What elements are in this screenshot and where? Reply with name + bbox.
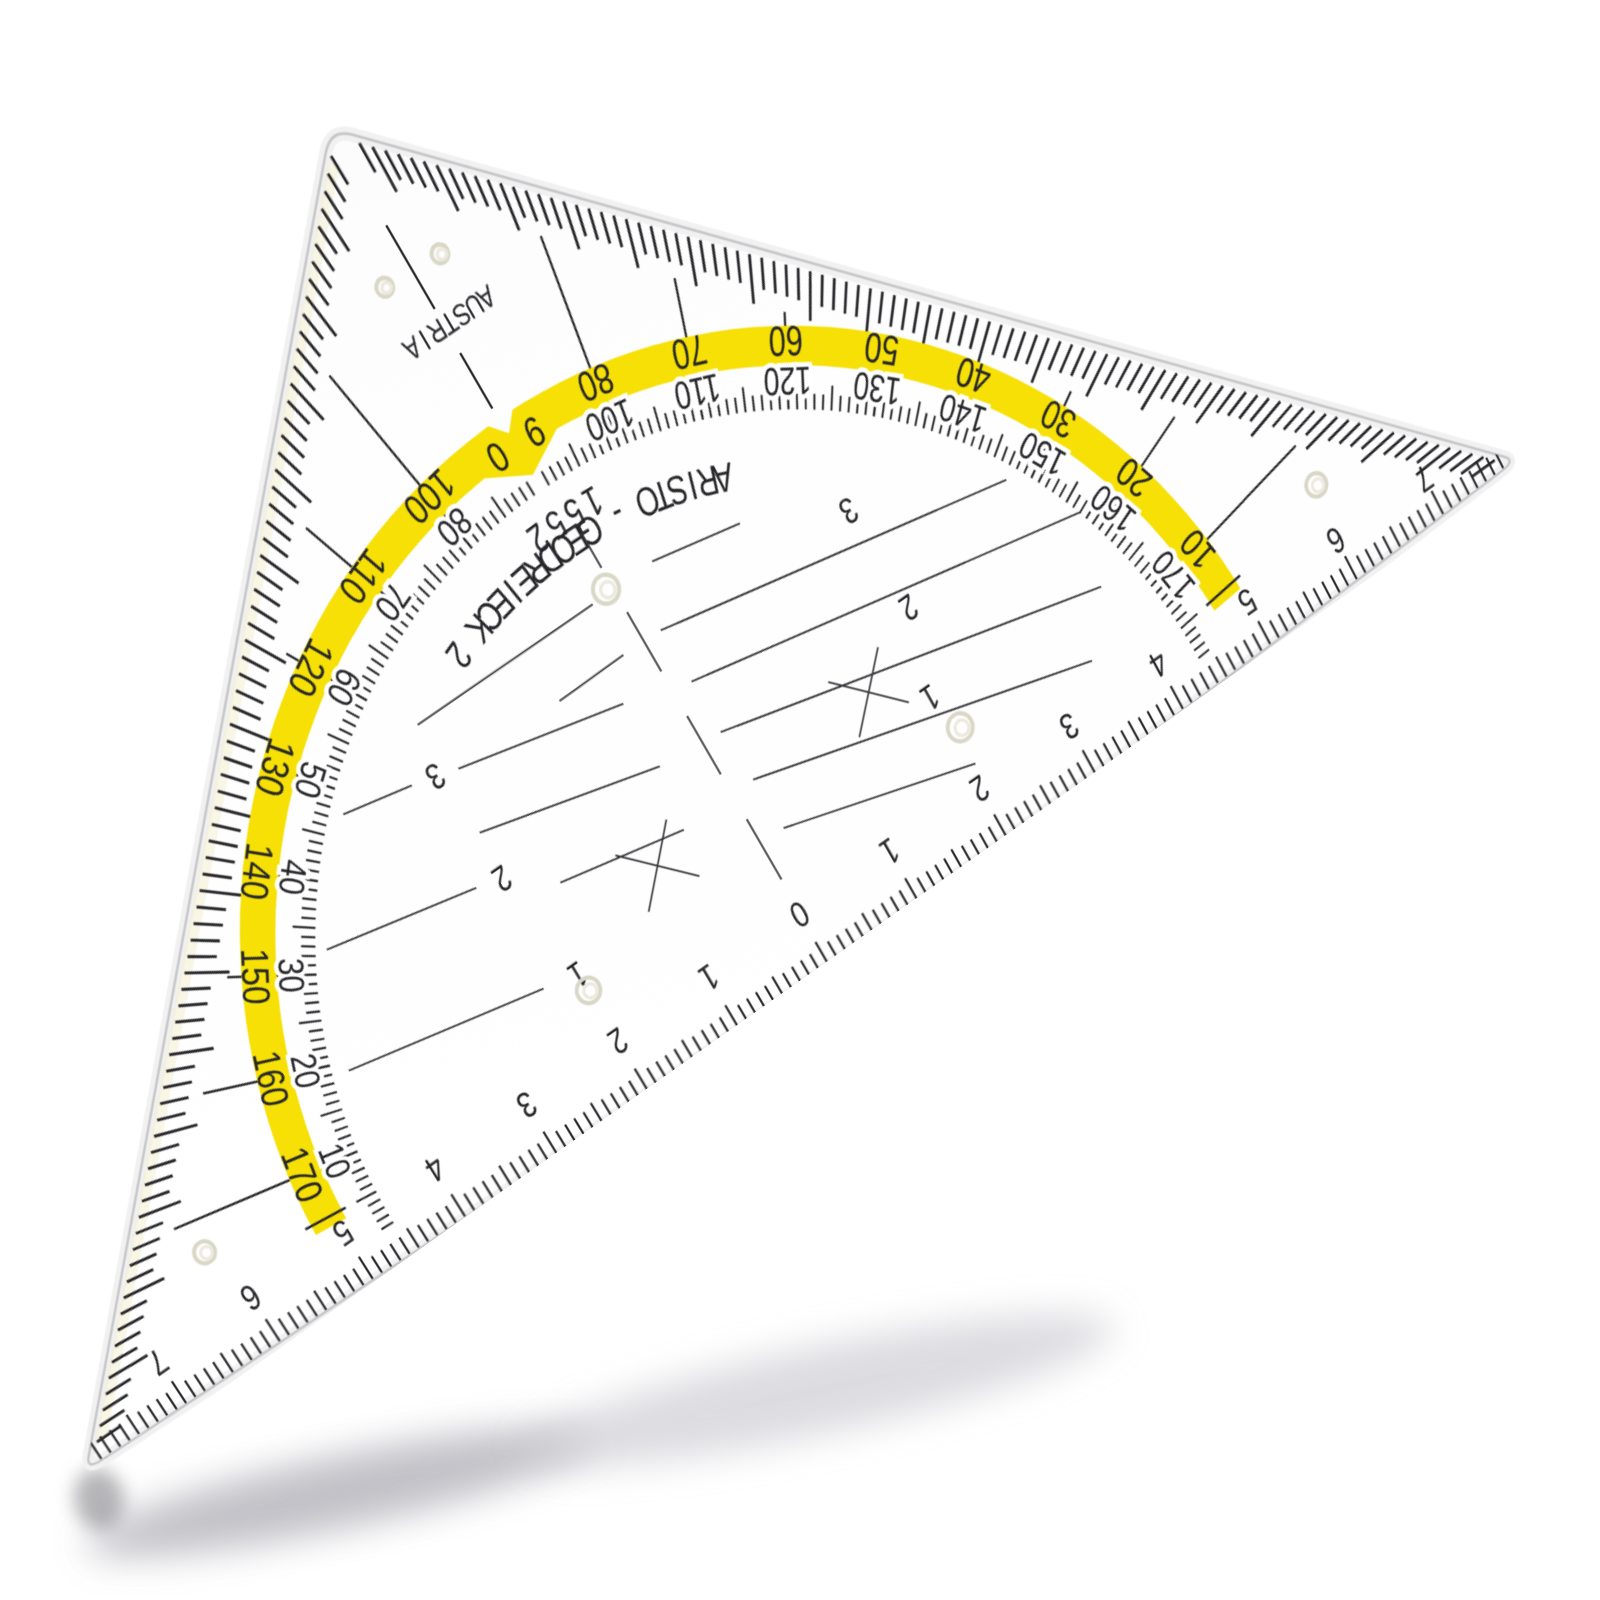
svg-text:120: 120	[763, 357, 813, 403]
svg-text:110: 110	[670, 364, 724, 418]
svg-text:130: 130	[851, 362, 903, 413]
svg-text:40: 40	[270, 857, 314, 898]
svg-text:30: 30	[270, 957, 311, 993]
